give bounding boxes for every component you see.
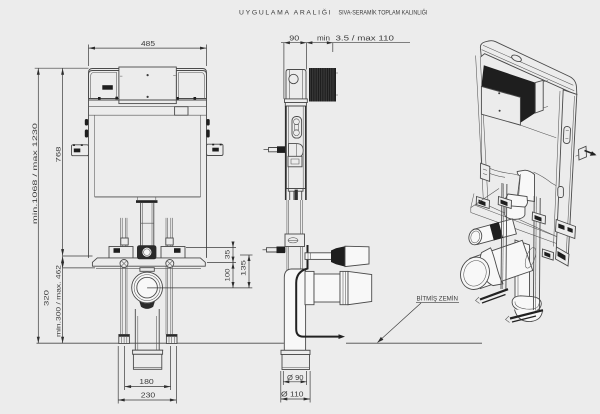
svg-text:768: 768: [56, 146, 63, 162]
svg-text:35: 35: [225, 249, 232, 259]
svg-text:3.5 / max 110: 3.5 / max 110: [336, 35, 395, 42]
svg-text:Ø 110: Ø 110: [281, 392, 304, 399]
svg-text:min: min: [317, 35, 330, 42]
svg-text:Ø 90: Ø 90: [287, 375, 304, 382]
svg-text:230: 230: [141, 393, 156, 400]
svg-text:SIVA-SERAMİK TOPLAM KALINLIĞI: SIVA-SERAMİK TOPLAM KALINLIĞI: [339, 8, 428, 17]
svg-text:180: 180: [139, 379, 154, 386]
svg-text:90: 90: [289, 35, 299, 42]
svg-text:BİTMİŞ ZEMİN: BİTMİŞ ZEMİN: [417, 294, 459, 303]
svg-text:485: 485: [141, 41, 155, 48]
svg-text:135: 135: [241, 260, 248, 276]
svg-text:min.1068 / max 1230: min.1068 / max 1230: [32, 123, 39, 225]
svg-text:100: 100: [225, 268, 232, 281]
svg-text:UYGULAMA ARALIĞI: UYGULAMA ARALIĞI: [239, 8, 332, 17]
svg-text:320: 320: [44, 290, 51, 306]
svg-text:min.300 / max. 462: min.300 / max. 462: [56, 265, 63, 337]
